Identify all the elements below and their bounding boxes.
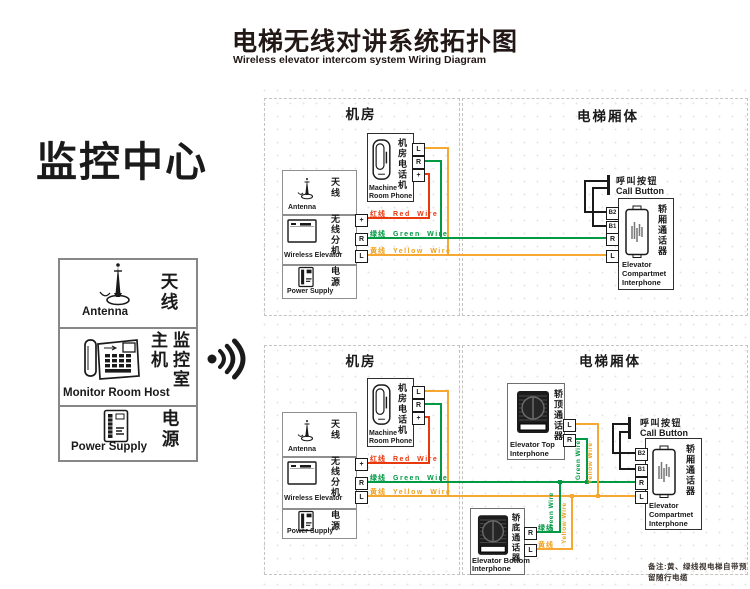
- terminal-L: L: [563, 419, 576, 432]
- power-supply-icon: [103, 409, 129, 443]
- call-button-icon: [607, 175, 610, 195]
- terminal-B2: B2: [635, 448, 648, 461]
- speaker-icon: [516, 390, 550, 436]
- divider: [283, 264, 356, 266]
- call-button-wire: [620, 468, 635, 470]
- monitor-host-label-zh: 监控室主机: [146, 331, 190, 390]
- station-antenna-label-en: Antenna: [288, 446, 316, 453]
- terminal-plus: +: [412, 169, 425, 182]
- call-button-wire: [619, 431, 621, 470]
- call-button-wire: [585, 180, 607, 182]
- call-button-wire: [620, 431, 628, 433]
- machine-room-phone-label-en2: Room Phone: [369, 438, 412, 445]
- terminal-R: R: [524, 527, 537, 540]
- terminal-plus: +: [412, 412, 425, 425]
- call-button-label-en: Call Button: [640, 428, 688, 438]
- wireless-unit-icon: [287, 219, 317, 243]
- yellow-wire-vertical-label: Yellow Wire: [587, 428, 594, 484]
- divider: [283, 214, 356, 216]
- handset-icon: [372, 139, 392, 184]
- red-wire-label: 红线Red Wire: [370, 454, 438, 464]
- desk-phone-icon: [82, 334, 142, 384]
- terminal-R: R: [355, 477, 368, 490]
- wire-junction: [558, 480, 562, 484]
- machine-room-phone-label-zh: 机房电话机: [396, 383, 409, 439]
- interphone-icon: [624, 205, 650, 259]
- wireless-unit-icon: [287, 461, 317, 485]
- machine-room-header-top: 机房: [337, 103, 385, 123]
- call-button-wire: [592, 187, 594, 227]
- call-button-icon: [628, 417, 631, 439]
- yellow-wire: [423, 147, 449, 149]
- compartment-interphone-en1: Elevator: [622, 260, 652, 269]
- monitor-antenna-label-en: Antenna: [82, 306, 128, 318]
- divider: [60, 327, 196, 329]
- page-title: 电梯无线对讲系统拓扑图: [232, 22, 518, 58]
- antenna-icon: [96, 262, 140, 308]
- station-antenna-label-zh: 天线: [329, 419, 342, 445]
- terminal-L: L: [606, 250, 619, 263]
- wire-junction: [596, 494, 600, 498]
- monitor-power-label-zh: 电源: [158, 409, 183, 455]
- green-wire-label: 绿线Green Wire: [370, 473, 448, 483]
- call-button-wire: [584, 180, 586, 213]
- call-button-wire: [592, 225, 606, 227]
- machine-room-phone-label-en1: Machine: [369, 430, 397, 437]
- terminal-R: R: [606, 233, 619, 246]
- station-wireless-label-en: Wireless Elevator: [284, 252, 342, 259]
- top-interphone-en1: Elevator Top: [510, 440, 555, 449]
- call-button-wire: [593, 187, 607, 189]
- terminal-L: L: [355, 491, 368, 504]
- terminal-B1: B1: [635, 464, 648, 477]
- interphone-icon: [651, 445, 677, 499]
- power-supply-icon: [298, 265, 314, 289]
- terminal-L: L: [635, 491, 648, 504]
- call-button-wire: [584, 211, 606, 213]
- compartment-interphone-en2: Compartmet: [622, 269, 666, 278]
- monitor-center-heading: 监控中心: [36, 128, 208, 188]
- terminal-R: R: [412, 399, 425, 412]
- compartment-interphone-label-zh: 轿厢通话器: [656, 204, 669, 262]
- station-power-label-en: Power Supply: [287, 288, 333, 295]
- yellow-wire: [597, 423, 599, 497]
- bottom-interphone-en2: Interphone: [472, 564, 511, 573]
- compartment-interphone-en1: Elevator: [649, 501, 679, 510]
- terminal-R: R: [412, 156, 425, 169]
- machine-room-phone-label-en2: Room Phone: [369, 193, 412, 200]
- green-wire-vertical-label: Green Wire: [548, 492, 555, 532]
- yellow-wire-label: 黄线Yellow Wire: [370, 246, 451, 256]
- divider: [283, 456, 356, 458]
- antenna-icon: [296, 416, 318, 446]
- machine-room-phone-label-zh: 机房电话机: [396, 138, 409, 194]
- call-button-wire: [613, 423, 628, 425]
- call-button-wire: [612, 423, 614, 454]
- divider: [60, 405, 196, 407]
- page-subtitle: Wireless elevator intercom system Wiring…: [233, 54, 486, 66]
- machine-room-header-bottom: 机房: [337, 350, 385, 370]
- call-button-label-en: Call Button: [616, 186, 664, 196]
- green-wire-vertical-label: Green Wire: [575, 432, 582, 480]
- wiring-diagram-page: 电梯无线对讲系统拓扑图 Wireless elevator intercom s…: [0, 0, 750, 589]
- yellow-wire-short-label: 黄线: [538, 540, 561, 550]
- station-antenna-label-zh: 天线: [329, 177, 342, 203]
- station-power-label-en: Power Supply: [287, 528, 333, 535]
- yellow-wire: [423, 390, 449, 392]
- terminal-L: L: [412, 143, 425, 156]
- elevator-header-bottom: 电梯厢体: [575, 350, 645, 370]
- speaker-icon: [477, 514, 509, 558]
- top-interphone-en2: Interphone: [510, 449, 549, 458]
- terminal-R: R: [635, 477, 648, 490]
- terminal-B2: B2: [606, 207, 619, 220]
- green-wire-label: 绿线Green Wire: [370, 229, 448, 239]
- footnote: 备注:黄、绿线视电梯自带预留随行电缆: [648, 561, 750, 583]
- terminal-R: R: [355, 233, 368, 246]
- yellow-wire: [447, 147, 449, 256]
- call-button-wire: [613, 452, 635, 454]
- compartment-interphone-en3: Interphone: [622, 278, 661, 287]
- handset-icon: [372, 384, 392, 429]
- yellow-wire-label: 黄线Yellow Wire: [370, 487, 451, 497]
- compartment-interphone-en2: Compartmet: [649, 510, 693, 519]
- antenna-icon: [296, 174, 318, 204]
- green-wire: [440, 160, 442, 239]
- elevator-zone-top: [462, 98, 748, 316]
- yellow-wire-vertical-label: Yellow Wire: [561, 496, 568, 544]
- station-antenna-label-en: Antenna: [288, 204, 316, 211]
- red-wire-label: 红线Red Wire: [370, 209, 438, 219]
- elevator-header-top: 电梯厢体: [573, 105, 643, 125]
- wire-junction: [570, 494, 574, 498]
- compartment-interphone-label-zh: 轿厢通话器: [684, 444, 697, 502]
- terminal-L: L: [524, 544, 537, 557]
- monitor-antenna-label-zh: 天线: [157, 272, 182, 318]
- terminal-R: R: [563, 434, 576, 447]
- terminal-L: L: [355, 250, 368, 263]
- yellow-wire: [574, 423, 599, 425]
- monitor-host-label-en: Monitor Room Host: [63, 387, 170, 399]
- monitor-power-label-en: Power Supply: [71, 441, 147, 453]
- compartment-interphone-en3: Interphone: [649, 519, 688, 528]
- green-wire: [440, 403, 442, 483]
- terminal-L: L: [412, 386, 425, 399]
- station-wireless-label-en: Wireless Elevator: [284, 495, 342, 502]
- wireless-signal-icon: [203, 336, 249, 382]
- yellow-wire: [571, 495, 573, 550]
- terminal-plus: +: [355, 214, 368, 227]
- terminal-plus: +: [355, 458, 368, 471]
- machine-room-phone-label-en1: Machine: [369, 185, 397, 192]
- divider: [283, 508, 356, 510]
